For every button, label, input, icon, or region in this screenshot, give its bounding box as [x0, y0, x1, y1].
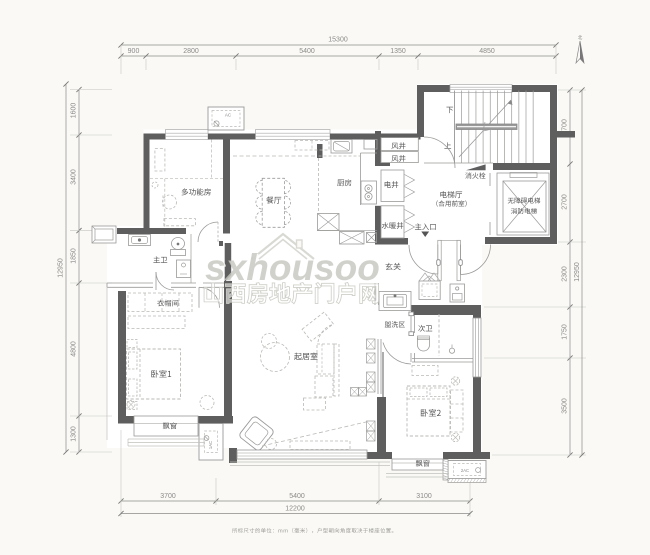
svg-text:AC: AC [225, 113, 232, 118]
svg-text:sxhousoo: sxhousoo [205, 247, 380, 288]
svg-text:2700: 2700 [562, 194, 569, 210]
svg-text:1850: 1850 [71, 248, 78, 264]
svg-text:2300: 2300 [562, 266, 569, 282]
svg-text:3400: 3400 [71, 169, 78, 185]
svg-text:4800: 4800 [71, 341, 78, 357]
svg-text:5400: 5400 [299, 48, 315, 55]
svg-text:900: 900 [128, 48, 140, 55]
svg-text:1350: 1350 [390, 48, 406, 55]
svg-text:3500: 3500 [562, 398, 569, 414]
svg-text:12950: 12950 [574, 262, 581, 282]
svg-text:700: 700 [562, 119, 569, 131]
svg-text:15300: 15300 [328, 37, 348, 44]
svg-text:1600: 1600 [71, 103, 78, 119]
svg-text:1300: 1300 [71, 426, 78, 442]
svg-text:北: 北 [578, 34, 583, 41]
svg-text:12200: 12200 [285, 506, 305, 513]
svg-text:2800: 2800 [183, 48, 199, 55]
svg-text:1750: 1750 [562, 324, 569, 340]
svg-text:12950: 12950 [58, 258, 65, 278]
svg-text:5400: 5400 [289, 493, 305, 500]
svg-text:1AC: 1AC [208, 441, 213, 449]
svg-text:3100: 3100 [416, 493, 432, 500]
svg-text:3700: 3700 [160, 493, 176, 500]
svg-text:4850: 4850 [479, 48, 495, 55]
svg-text:2AC: 2AC [461, 468, 469, 473]
